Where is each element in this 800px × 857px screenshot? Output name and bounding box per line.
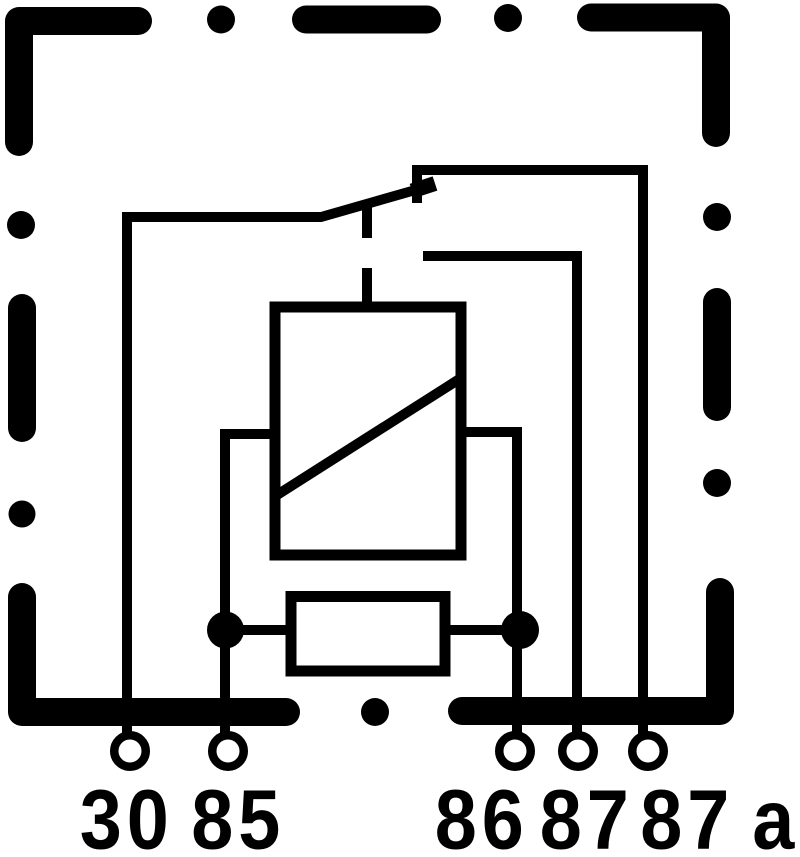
- svg-text:a: a: [752, 773, 799, 857]
- svg-text:87: 87: [540, 773, 634, 857]
- svg-text:85: 85: [191, 773, 285, 857]
- svg-text:30: 30: [80, 773, 174, 857]
- svg-text:87: 87: [640, 773, 734, 857]
- svg-text:86: 86: [435, 773, 529, 857]
